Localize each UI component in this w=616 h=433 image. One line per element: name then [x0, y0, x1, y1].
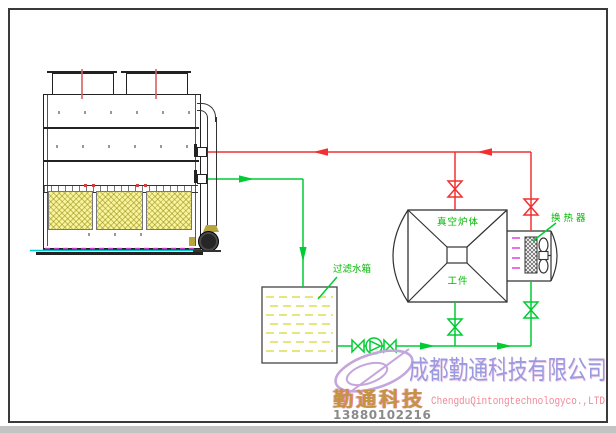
company-logo-text: 勤通科技 — [333, 388, 425, 410]
flow-arrow-icon — [477, 148, 492, 156]
flow-arrow-icon — [313, 148, 328, 156]
fan-propeller-icon — [539, 238, 551, 273]
workpiece-zone — [447, 247, 467, 263]
cad-drawing-canvas: 过滤水箱 真空炉体 工件 换 热 器 成都勤通科技有限公司 勤通科技 Cheng… — [0, 0, 616, 433]
hot-nozzle-flange — [197, 147, 207, 157]
flow-arrow-icon — [299, 247, 306, 262]
company-phone: 13880102216 — [333, 409, 431, 422]
filter-tank-label: 过滤水箱 — [333, 265, 371, 275]
fan-shaft-lines — [82, 69, 156, 99]
pump-flange — [189, 237, 195, 246]
company-name-cn: 成都勤通科技有限公司 — [409, 356, 607, 386]
workpiece-label: 工件 — [440, 277, 476, 287]
heat-exchanger-label: 换 热 器 — [551, 214, 586, 224]
hx-core-hatch — [525, 237, 537, 273]
cold-nozzle-flange — [197, 174, 207, 184]
flow-arrow-icon — [420, 342, 435, 349]
company-name-en: ChengduQintongtechnologyco.,LTD — [431, 396, 605, 409]
flow-arrow-icon — [239, 175, 254, 182]
green-valve-icon — [352, 340, 364, 352]
pump-base — [193, 250, 221, 253]
filter-water-tank — [262, 287, 337, 363]
riser-pipe — [207, 117, 218, 226]
flow-arrow-icon — [497, 342, 512, 349]
furnace-body-label: 真空炉体 — [429, 218, 487, 228]
